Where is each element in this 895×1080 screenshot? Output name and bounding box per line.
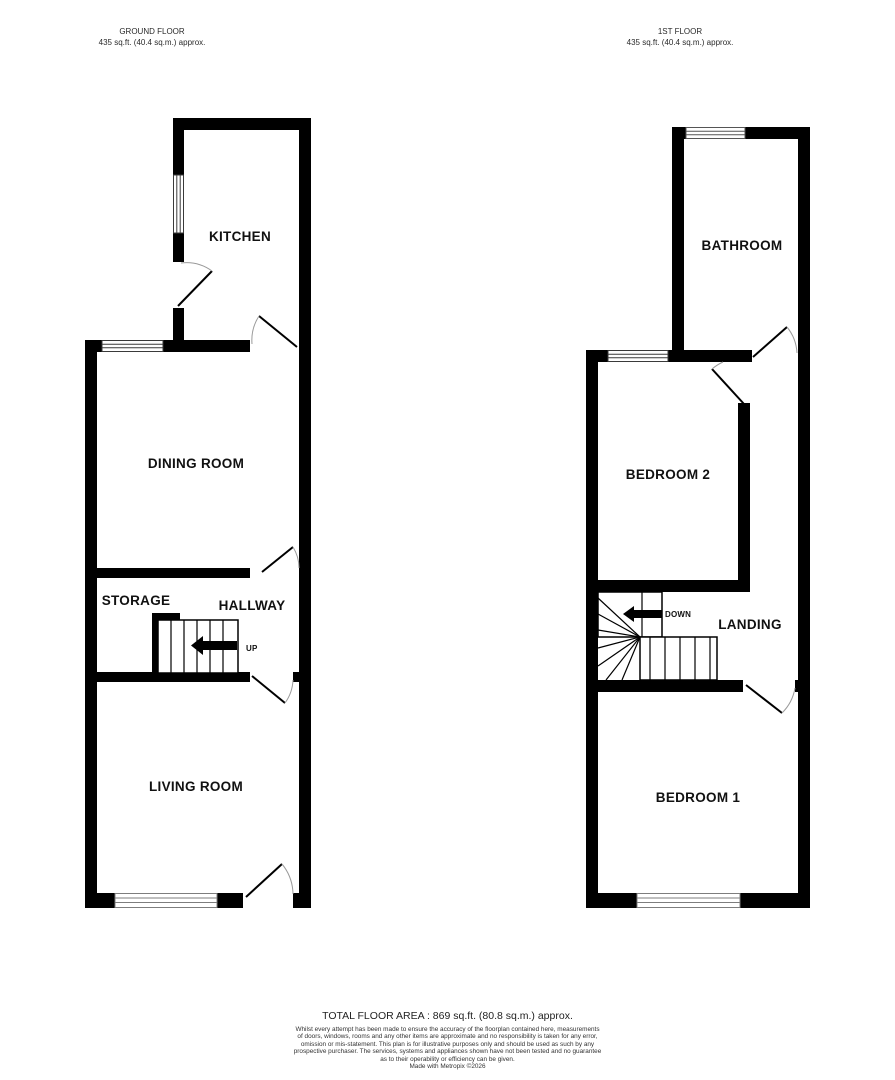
living-room-label: LIVING ROOM bbox=[149, 779, 243, 794]
dining-room-window bbox=[102, 341, 163, 352]
bedroom2-door bbox=[712, 362, 744, 404]
kitchen-dining-door bbox=[252, 316, 297, 347]
up-label: UP bbox=[246, 644, 258, 653]
kitchen-door bbox=[178, 263, 212, 306]
dining-room-label: DINING ROOM bbox=[148, 456, 244, 471]
bedroom1-door bbox=[746, 685, 795, 713]
bedroom2-window bbox=[608, 351, 668, 362]
disclaimer-line: Whilst every attempt has been made to en… bbox=[0, 1026, 895, 1033]
bathroom-label: BATHROOM bbox=[702, 238, 783, 253]
storage-label: STORAGE bbox=[102, 593, 171, 608]
disclaimer-line: omission or mis-statement. This plan is … bbox=[0, 1041, 895, 1048]
kitchen-label: KITCHEN bbox=[209, 229, 271, 244]
floorplan-canvas: UP KITCHEN DINING ROOM STORAGE HALLWAY L… bbox=[0, 0, 895, 1080]
bedroom1-label: BEDROOM 1 bbox=[656, 790, 741, 805]
bedroom1-window bbox=[637, 894, 740, 908]
bedroom2-label: BEDROOM 2 bbox=[626, 467, 710, 482]
floorplan-page: GROUND FLOOR 435 sq.ft. (40.4 sq.m.) app… bbox=[0, 0, 895, 1080]
bathroom-door bbox=[753, 327, 797, 357]
living-room-entrance-door bbox=[246, 864, 293, 897]
disclaimer-line: of doors, windows, rooms and any other i… bbox=[0, 1033, 895, 1040]
kitchen-window bbox=[174, 175, 184, 233]
ground-floor-plan: UP KITCHEN DINING ROOM STORAGE HALLWAY L… bbox=[85, 118, 311, 908]
landing-label: LANDING bbox=[718, 617, 782, 632]
madewith-credit: Made with Metropix ©2026 bbox=[0, 1063, 895, 1070]
ground-stairs: UP bbox=[152, 613, 258, 675]
disclaimer: Whilst every attempt has been made to en… bbox=[0, 1026, 895, 1070]
disclaimer-line: prospective purchaser. The services, sys… bbox=[0, 1048, 895, 1055]
footer: TOTAL FLOOR AREA : 869 sq.ft. (80.8 sq.m… bbox=[0, 1010, 895, 1070]
dining-hallway-door bbox=[262, 547, 299, 572]
living-room-window bbox=[115, 894, 217, 908]
bathroom-window bbox=[686, 128, 745, 139]
hallway-living-door bbox=[252, 676, 293, 703]
down-label: DOWN bbox=[665, 610, 691, 619]
first-stairs: DOWN bbox=[598, 592, 717, 680]
first-floor-plan: DOWN BATHROOM BEDROOM 2 LANDING BEDROOM … bbox=[586, 127, 810, 908]
hallway-label: HALLWAY bbox=[219, 598, 286, 613]
total-floor-area: TOTAL FLOOR AREA : 869 sq.ft. (80.8 sq.m… bbox=[0, 1010, 895, 1022]
disclaimer-line: as to their operability or efficiency ca… bbox=[0, 1056, 895, 1063]
